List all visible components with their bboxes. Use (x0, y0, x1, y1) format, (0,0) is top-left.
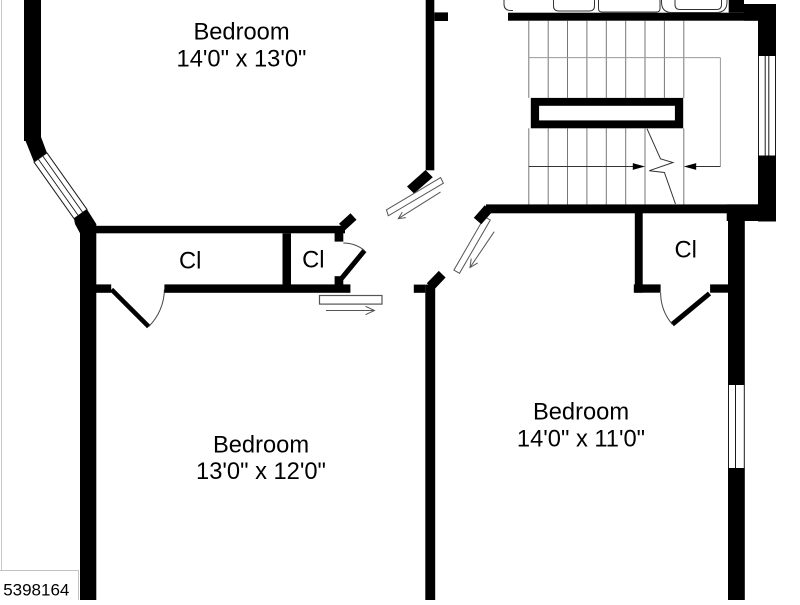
svg-text:Bedroom: Bedroom (213, 433, 309, 459)
svg-text:Cl: Cl (179, 249, 201, 275)
svg-text:Cl: Cl (302, 248, 324, 274)
svg-text:14'0" x 13'0": 14'0" x 13'0" (177, 46, 307, 72)
svg-text:14'0" x 11'0": 14'0" x 11'0" (517, 426, 645, 452)
svg-text:Bedroom: Bedroom (193, 20, 289, 46)
svg-text:13'0" x 12'0": 13'0" x 12'0" (196, 459, 326, 485)
svg-text:Cl: Cl (675, 238, 697, 264)
svg-text:5398164: 5398164 (3, 581, 69, 600)
svg-text:Bedroom: Bedroom (533, 400, 629, 426)
